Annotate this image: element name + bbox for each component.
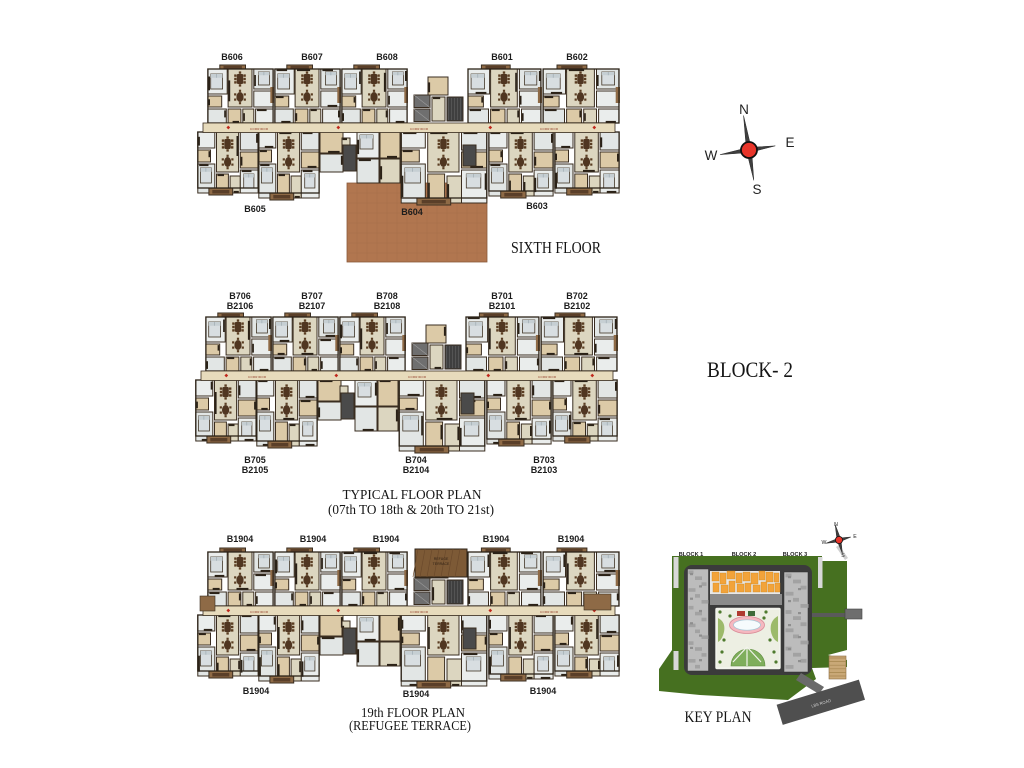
svg-text:B2103: B2103: [531, 465, 558, 475]
svg-text:CORRIDOR: CORRIDOR: [538, 375, 556, 379]
svg-text:B1904: B1904: [300, 534, 327, 544]
svg-text:CORRIDOR: CORRIDOR: [250, 610, 268, 614]
svg-text:CORRIDOR: CORRIDOR: [540, 610, 558, 614]
svg-text:B703: B703: [533, 455, 555, 465]
svg-text:E: E: [853, 534, 857, 540]
svg-text:B2101: B2101: [489, 301, 516, 311]
svg-text:B605: B605: [244, 204, 266, 214]
svg-text:B702: B702: [566, 291, 588, 301]
svg-text:B1904: B1904: [373, 534, 400, 544]
svg-text:B603: B603: [526, 201, 548, 211]
svg-text:CORRIDOR: CORRIDOR: [540, 127, 558, 131]
svg-text:BLOCK- 2: BLOCK- 2: [707, 357, 793, 382]
svg-text:B606: B606: [221, 52, 243, 62]
svg-text:B608: B608: [376, 52, 398, 62]
svg-text:B1904: B1904: [227, 534, 254, 544]
svg-text:CORRIDOR: CORRIDOR: [250, 127, 268, 131]
svg-text:SIXTH FLOOR: SIXTH FLOOR: [511, 238, 601, 257]
svg-text:B701: B701: [491, 291, 513, 301]
svg-text:B2106: B2106: [227, 301, 254, 311]
svg-text:TERRACE: TERRACE: [433, 562, 450, 566]
svg-text:REFUGE: REFUGE: [434, 557, 449, 561]
svg-text:W: W: [822, 540, 827, 546]
svg-text:B708: B708: [376, 291, 398, 301]
svg-text:S: S: [752, 182, 761, 197]
svg-text:B705: B705: [244, 455, 266, 465]
svg-text:B607: B607: [301, 52, 323, 62]
svg-text:B707: B707: [301, 291, 323, 301]
svg-text:B1904: B1904: [243, 686, 270, 696]
svg-text:(REFUGEE TERRACE): (REFUGEE TERRACE): [349, 718, 471, 733]
svg-text:S: S: [841, 553, 845, 559]
svg-text:CORRIDOR: CORRIDOR: [248, 375, 266, 379]
svg-text:TYPICAL FLOOR PLAN: TYPICAL FLOOR PLAN: [343, 487, 482, 502]
svg-text:B601: B601: [491, 52, 513, 62]
svg-text:KEY PLAN: KEY PLAN: [685, 709, 752, 726]
svg-text:BLOCK 3: BLOCK 3: [783, 552, 808, 558]
svg-text:B2104: B2104: [403, 465, 430, 475]
svg-text:B2108: B2108: [374, 301, 401, 311]
svg-text:(07th TO 18th & 20th TO 21st): (07th TO 18th & 20th TO 21st): [328, 502, 494, 517]
svg-text:B1904: B1904: [558, 534, 585, 544]
svg-text:CORRIDOR: CORRIDOR: [410, 610, 428, 614]
svg-text:B706: B706: [229, 291, 251, 301]
svg-text:B2102: B2102: [564, 301, 591, 311]
svg-text:B602: B602: [566, 52, 588, 62]
svg-text:B1904: B1904: [483, 534, 510, 544]
svg-text:B1904: B1904: [530, 686, 557, 696]
svg-text:N: N: [739, 102, 749, 117]
svg-text:BLOCK 2: BLOCK 2: [732, 552, 757, 558]
svg-text:BLOCK 1: BLOCK 1: [679, 552, 704, 558]
svg-text:B704: B704: [405, 455, 427, 465]
svg-text:B604: B604: [401, 207, 423, 217]
svg-text:E: E: [785, 135, 794, 150]
svg-text:B1904: B1904: [403, 689, 430, 699]
svg-text:B2107: B2107: [299, 301, 326, 311]
svg-text:CORRIDOR: CORRIDOR: [410, 127, 428, 131]
svg-text:W: W: [705, 148, 718, 163]
svg-text:CORRIDOR: CORRIDOR: [408, 375, 426, 379]
svg-text:N: N: [834, 522, 838, 528]
svg-text:B2105: B2105: [242, 465, 269, 475]
